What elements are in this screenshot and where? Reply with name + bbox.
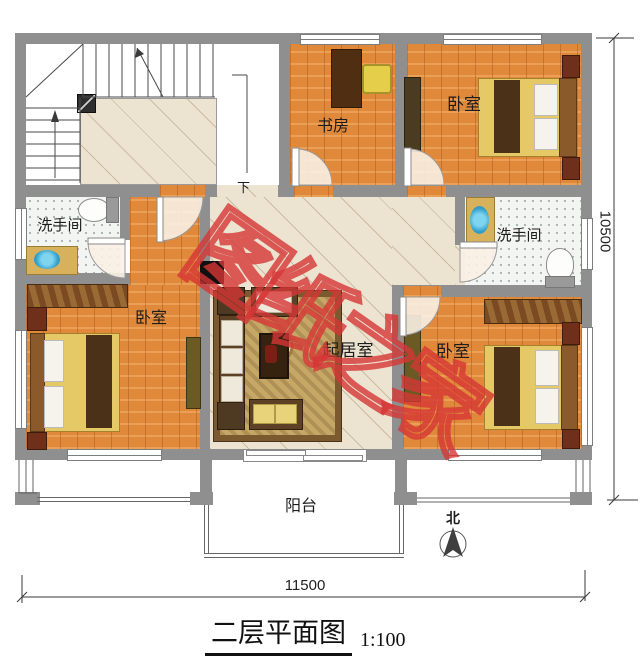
balcony-label: 阳台: [281, 498, 321, 516]
bedroomBR-door-arc: [403, 297, 440, 335]
dimension-right-value: 10500: [597, 207, 614, 257]
study-label: 书房: [314, 118, 352, 136]
stair-treads: [26, 44, 247, 183]
north-arrow: [440, 527, 466, 557]
drawing-title: 二层平面图: [205, 611, 352, 656]
study-door-arc: [296, 149, 332, 185]
living-room-label: 起居室: [319, 342, 377, 361]
stair-down-label: 下: [236, 181, 251, 195]
linework-layer: [0, 0, 640, 671]
bedroomL-door-arc: [160, 197, 203, 241]
drawing-scale: 1:100: [360, 629, 406, 656]
bedroom-bottom-right-label: 卧室: [433, 343, 473, 362]
bedroom-left-label: 卧室: [132, 310, 170, 328]
stair-direction-arrow: [51, 48, 144, 122]
bedroom-top-right-label: 卧室: [444, 96, 484, 115]
bathR-door-arc: [460, 245, 497, 282]
bathL-door-arc: [88, 241, 125, 278]
dimension-bottom-value: 11500: [280, 577, 330, 594]
floor-plan: 书房 卧室 卧室 卧室 洗手间 洗手间 起居室 阳台 下 北 11500 105…: [0, 0, 640, 671]
bedroomTR-door-arc: [408, 149, 444, 185]
title-block: 二层平面图 1:100: [205, 611, 406, 656]
north-label: 北: [445, 512, 461, 527]
bathroom-right-label: 洗手间: [487, 228, 551, 245]
bathroom-left-label: 洗手间: [28, 218, 92, 235]
